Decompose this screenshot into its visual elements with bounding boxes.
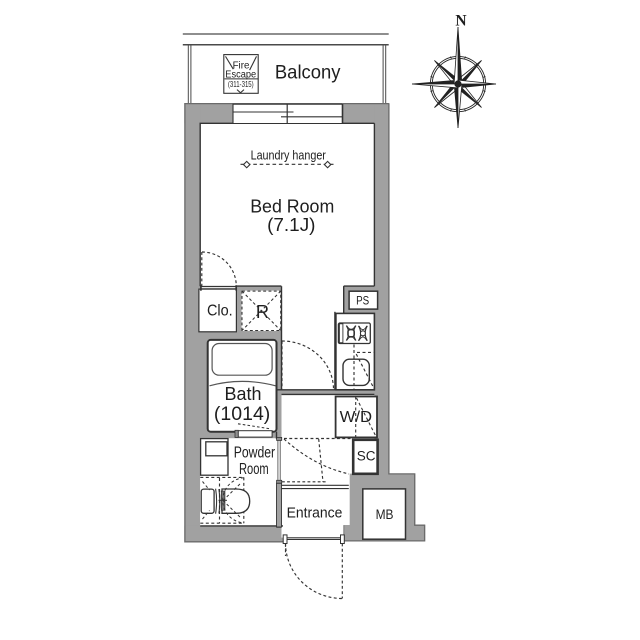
svg-text:W/D: W/D xyxy=(340,409,373,426)
svg-text:Laundry hanger: Laundry hanger xyxy=(251,147,327,162)
svg-text:PS: PS xyxy=(356,295,369,307)
svg-text:Room: Room xyxy=(239,461,269,478)
svg-text:SC: SC xyxy=(357,449,376,464)
svg-text:Clo.: Clo. xyxy=(207,303,233,320)
svg-text:(7.1J): (7.1J) xyxy=(267,214,315,235)
svg-text:Powder: Powder xyxy=(234,445,275,462)
svg-text:Bath: Bath xyxy=(225,384,262,404)
svg-text:MB: MB xyxy=(376,506,394,522)
svg-text:Balcony: Balcony xyxy=(275,63,341,84)
svg-text:Entrance: Entrance xyxy=(287,505,343,522)
svg-text:(311-315): (311-315) xyxy=(228,79,254,89)
svg-text:(1014): (1014) xyxy=(214,404,270,425)
svg-text:N: N xyxy=(455,13,466,30)
